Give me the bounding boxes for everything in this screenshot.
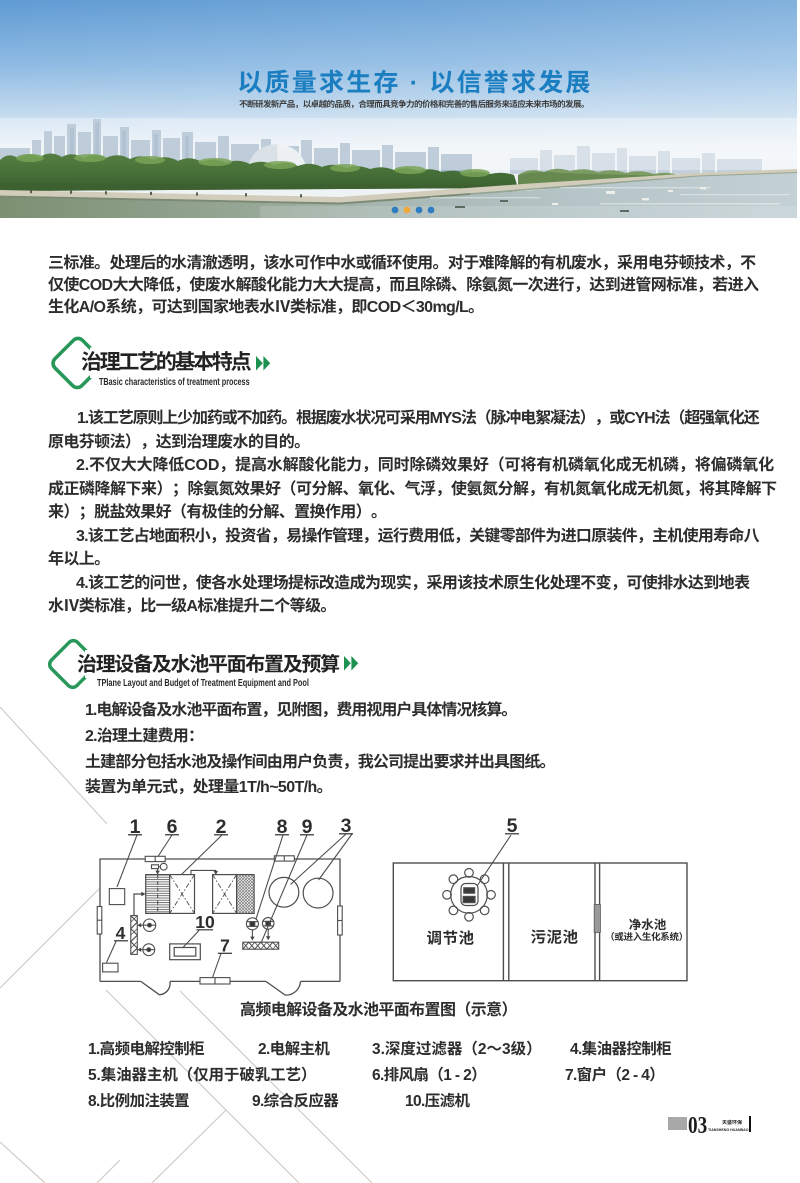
svg-text:7: 7 (220, 936, 230, 956)
svg-text:10: 10 (195, 912, 215, 932)
svg-text:（或进入生化系统）: （或进入生化系统） (605, 931, 688, 943)
svg-text:污泥池: 污泥池 (530, 929, 578, 947)
svg-text:调节池: 调节池 (426, 930, 474, 948)
svg-text:4: 4 (116, 923, 126, 943)
svg-text:天盛环保: 天盛环保 (722, 1119, 742, 1126)
svg-text:TIANSHENG HUANBAO: TIANSHENG HUANBAO (708, 1128, 749, 1132)
svg-text:净水池: 净水池 (629, 918, 667, 932)
